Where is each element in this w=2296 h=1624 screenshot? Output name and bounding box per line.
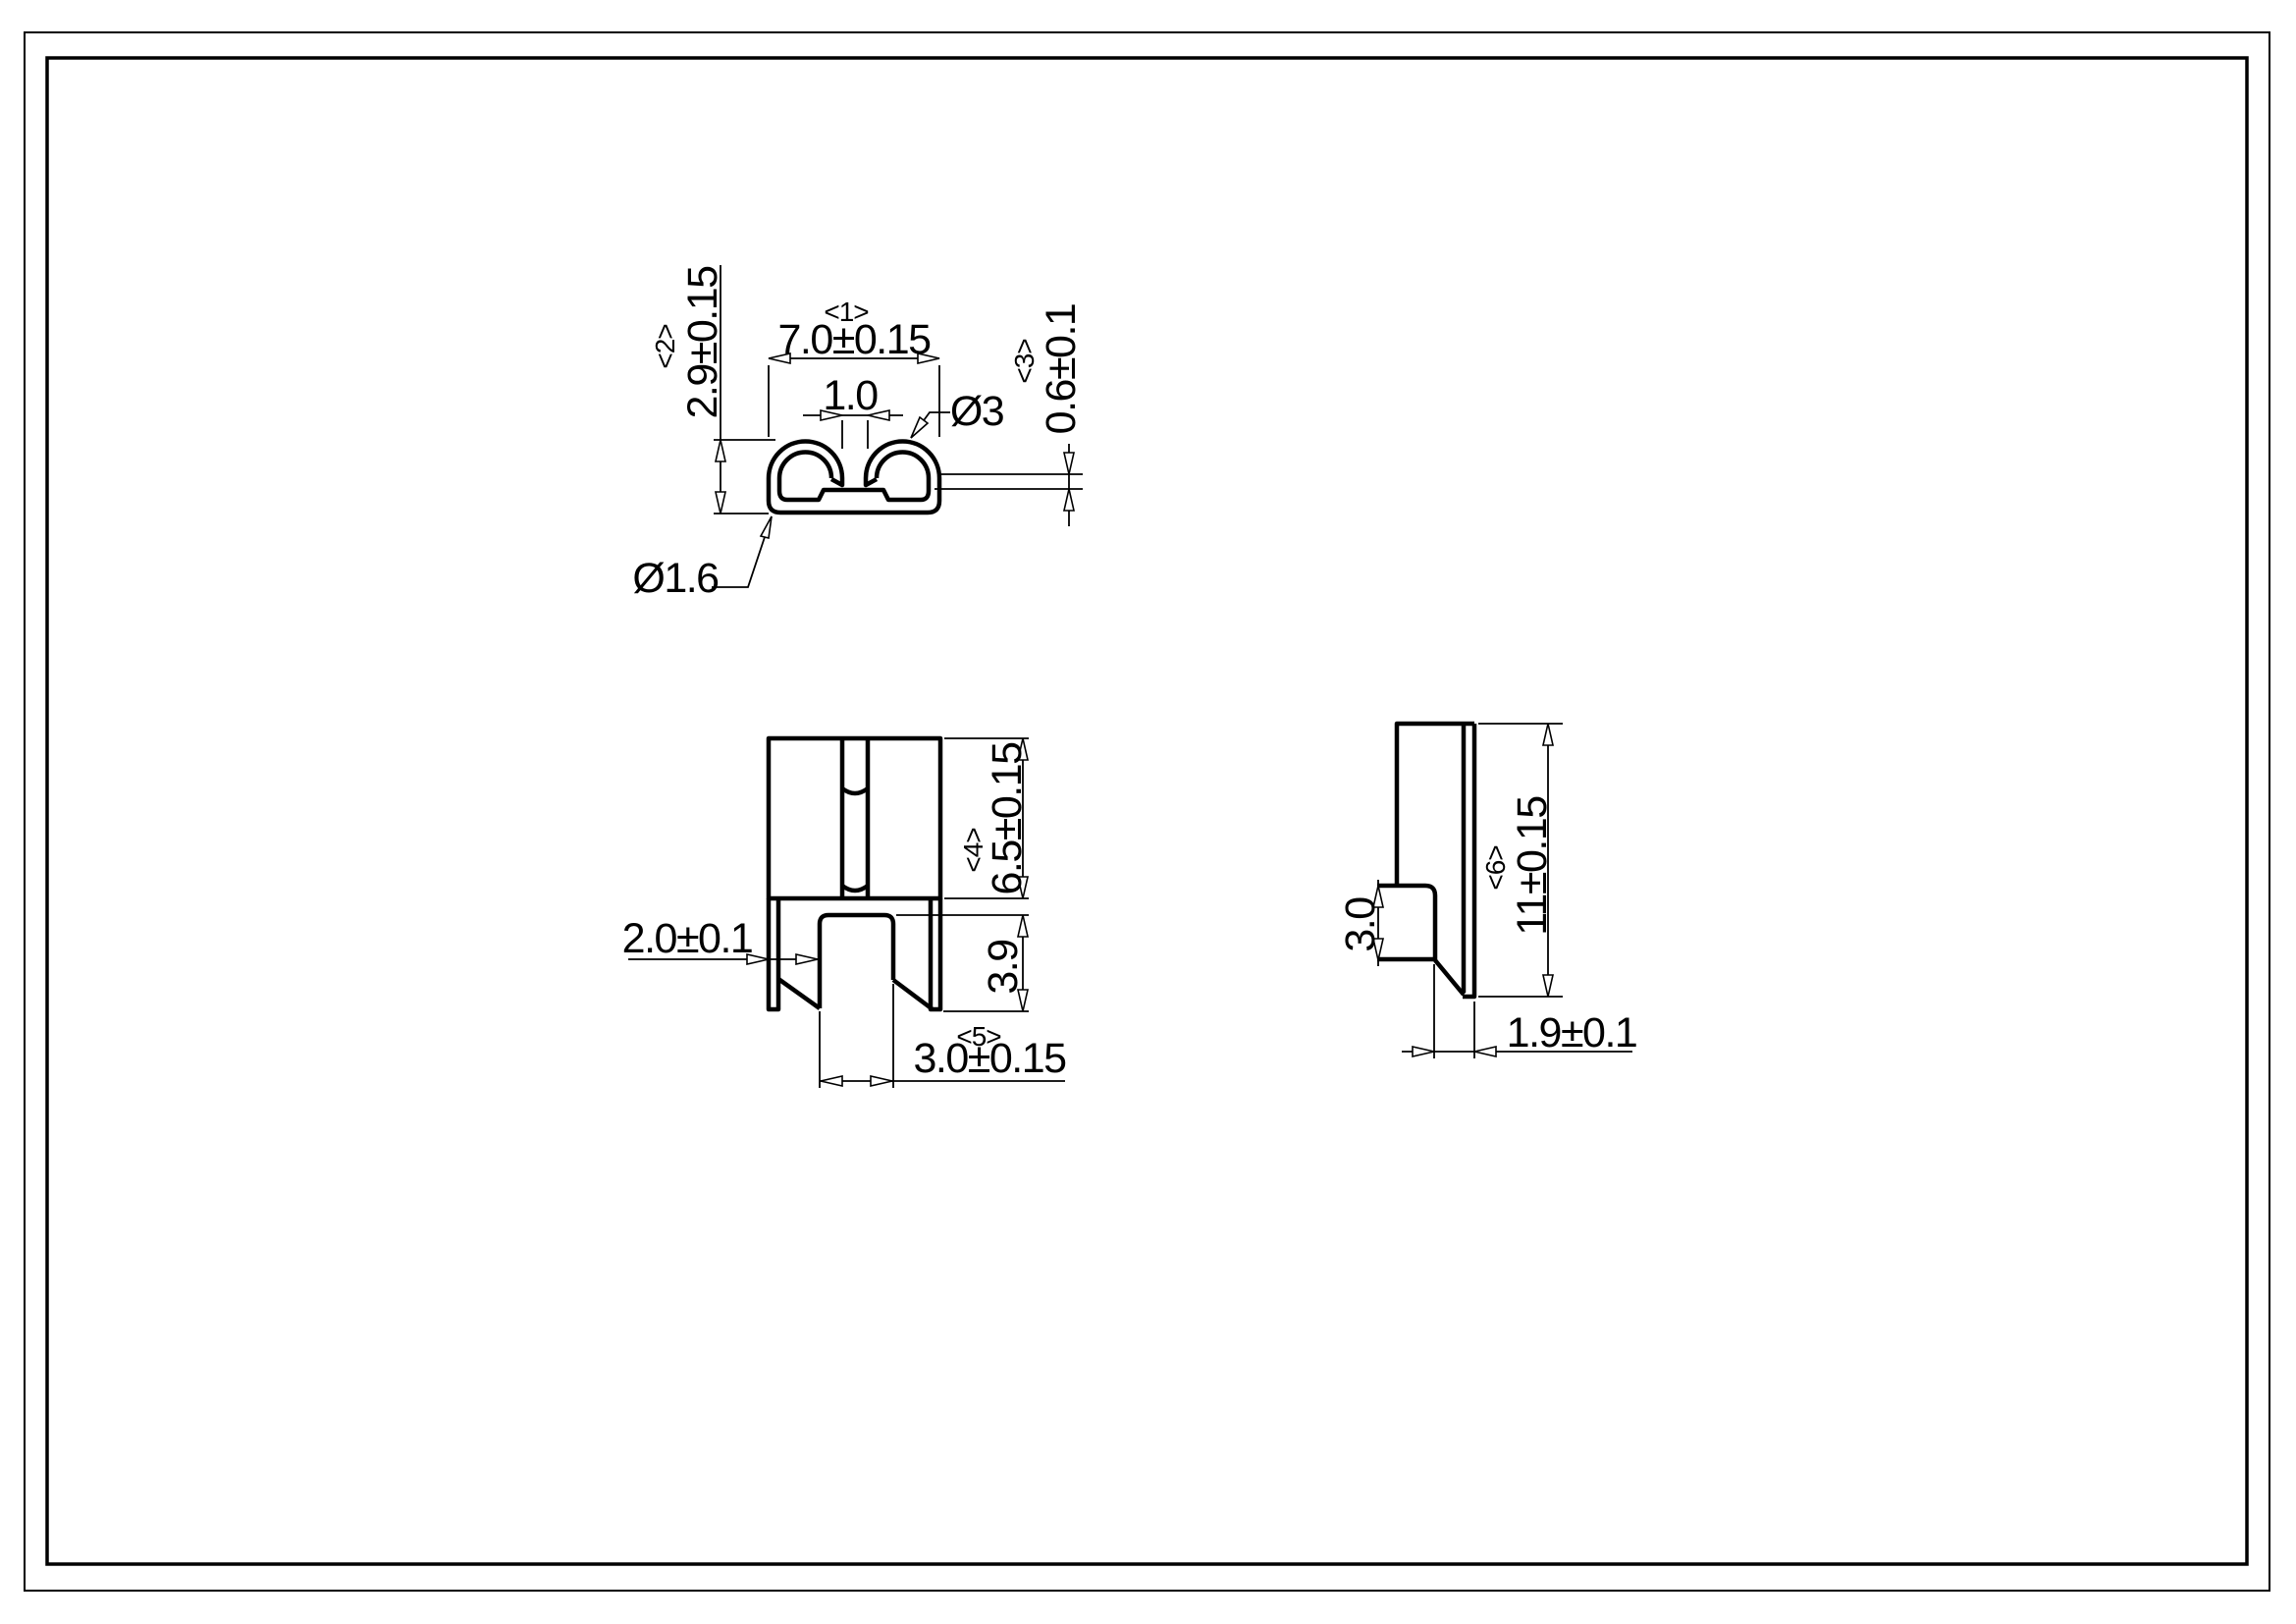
side-view: <6> 11±0.15 3.0 1.9±0.1 xyxy=(1337,724,1636,1058)
top-view: <1> 7.0±0.15 1.0 <2> 2.9±0.15 <3> 0.6±0.… xyxy=(632,265,1085,602)
arrowhead xyxy=(1474,1047,1496,1056)
profile-right-hook-inner-arc xyxy=(877,453,929,478)
dim-label-height: 11±0.15 xyxy=(1509,796,1556,936)
arrowhead xyxy=(1413,1047,1434,1056)
arrowhead xyxy=(821,1076,842,1086)
dim-label-hook-diameter: Ø3 xyxy=(950,388,1004,435)
dim-label-height: 2.9±0.15 xyxy=(679,266,726,419)
profile-inner-cavity xyxy=(779,478,929,500)
profile-right-hook-end-cap xyxy=(866,478,877,485)
front-center-tab xyxy=(820,915,893,1008)
dim-label-gap: 1.0 xyxy=(823,372,878,419)
dim-tag-3: <3> xyxy=(1009,339,1040,383)
front-body-outline xyxy=(769,738,940,898)
arrowhead xyxy=(1064,489,1074,511)
arrowhead xyxy=(911,417,928,438)
profile-left-hook-end-cap xyxy=(831,478,842,485)
side-tab-top-edge xyxy=(1377,886,1435,960)
front-slot-top-arc xyxy=(842,788,868,793)
dim-label-tab-height: 3.0 xyxy=(1337,897,1384,952)
dim-label-leg-offset: 2.0±0.1 xyxy=(622,915,753,962)
leader-line-corner-diameter xyxy=(712,516,772,587)
front-view: <4> 6.5±0.15 3.9 2.0±0.1 <5> 3.0±0.15 xyxy=(622,738,1066,1088)
dim-label-tab-width: 3.0±0.15 xyxy=(913,1035,1066,1082)
arrowhead xyxy=(761,516,772,538)
profile-body-outline xyxy=(769,478,939,513)
arrowhead xyxy=(871,1076,892,1086)
front-slot-bottom-arc xyxy=(842,886,868,891)
arrowhead xyxy=(716,440,725,461)
arrowhead xyxy=(716,492,725,514)
sheet-border-outer xyxy=(25,32,2269,1591)
arrowhead xyxy=(1543,975,1553,997)
dim-label-thickness: 0.6±0.1 xyxy=(1038,304,1085,435)
arrowhead xyxy=(1064,453,1074,474)
dim-label-width: 7.0±0.15 xyxy=(777,316,931,363)
drawing-canvas: <1> 7.0±0.15 1.0 <2> 2.9±0.15 <3> 0.6±0.… xyxy=(0,0,2296,1624)
dim-label-leg-height: 3.9 xyxy=(980,940,1027,994)
dim-label-corner-diameter: Ø1.6 xyxy=(632,555,719,602)
arrowhead xyxy=(796,954,818,964)
arrowhead xyxy=(1018,915,1028,937)
dim-label-foot-width: 1.9±0.1 xyxy=(1507,1009,1637,1056)
dim-tag-2: <2> xyxy=(650,324,680,368)
dim-tag-6: <6> xyxy=(1480,845,1511,890)
arrowhead xyxy=(1543,724,1553,745)
side-bend-line xyxy=(1435,960,1464,995)
front-left-leg xyxy=(769,898,778,1009)
profile-left-hook-inner-arc xyxy=(779,453,831,478)
sheet-border-inner xyxy=(47,58,2247,1564)
dim-label-body-height: 6.5±0.15 xyxy=(984,742,1031,895)
front-left-bend-line xyxy=(778,979,820,1008)
front-right-bend-line xyxy=(893,980,933,1009)
